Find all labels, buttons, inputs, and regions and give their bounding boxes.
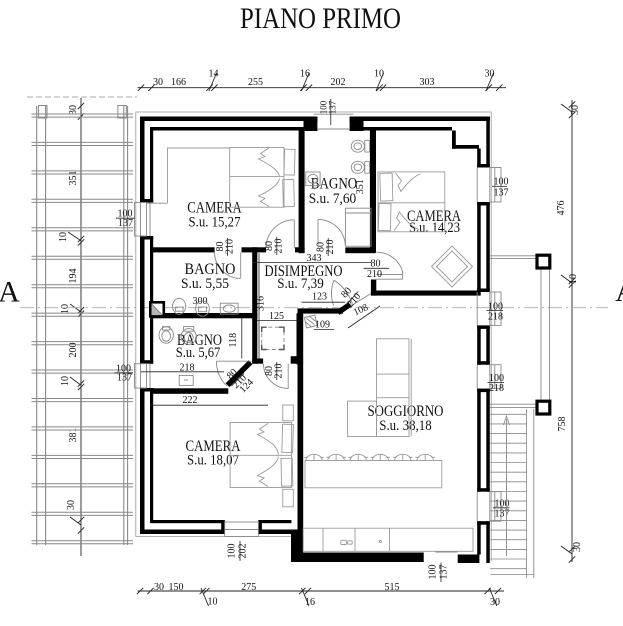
svg-text:351: 351 xyxy=(68,171,79,186)
svg-text:137: 137 xyxy=(494,188,509,199)
svg-text:PIANO PRIMO: PIANO PRIMO xyxy=(240,2,401,35)
svg-text:100: 100 xyxy=(227,544,238,559)
svg-text:202: 202 xyxy=(238,544,249,559)
svg-text:30: 30 xyxy=(154,582,164,593)
svg-text:275: 275 xyxy=(241,582,256,593)
svg-text:758: 758 xyxy=(557,417,568,432)
svg-text:222: 222 xyxy=(183,395,198,406)
svg-text:137: 137 xyxy=(117,373,132,384)
svg-text:S.u. 38,18: S.u. 38,18 xyxy=(379,418,432,434)
svg-text:202: 202 xyxy=(331,77,346,88)
svg-text:30: 30 xyxy=(153,77,163,88)
svg-text:210: 210 xyxy=(225,239,236,254)
svg-text:S.u. 5,55: S.u. 5,55 xyxy=(181,276,229,292)
svg-text:515: 515 xyxy=(385,582,400,593)
svg-text:210: 210 xyxy=(274,364,285,379)
svg-text:316: 316 xyxy=(256,296,267,311)
svg-text:S.u. 14,23: S.u. 14,23 xyxy=(409,220,460,236)
svg-text:30: 30 xyxy=(485,69,495,80)
svg-text:255: 255 xyxy=(248,77,263,88)
svg-text:137: 137 xyxy=(328,100,338,114)
svg-text:A: A xyxy=(0,276,20,309)
svg-text:210: 210 xyxy=(325,240,336,255)
svg-text:10: 10 xyxy=(60,376,71,386)
svg-text:351: 351 xyxy=(355,179,366,194)
svg-text:137: 137 xyxy=(439,565,450,580)
svg-text:100: 100 xyxy=(494,177,509,188)
svg-text:218: 218 xyxy=(489,383,504,394)
svg-text:30: 30 xyxy=(570,105,581,115)
svg-text:150: 150 xyxy=(169,582,184,593)
svg-text:14: 14 xyxy=(209,69,219,80)
svg-text:137: 137 xyxy=(495,509,510,520)
svg-text:10: 10 xyxy=(568,274,579,284)
svg-text:343: 343 xyxy=(307,253,322,264)
svg-text:S.u. 7,39: S.u. 7,39 xyxy=(277,276,324,292)
svg-text:30: 30 xyxy=(490,597,500,608)
svg-text:S.u. 15,27: S.u. 15,27 xyxy=(189,215,241,231)
svg-text:100: 100 xyxy=(428,565,439,580)
svg-text:194: 194 xyxy=(68,269,79,284)
svg-text:10: 10 xyxy=(374,69,384,80)
svg-text:16: 16 xyxy=(300,69,310,80)
svg-text:210: 210 xyxy=(274,239,285,254)
svg-text:303: 303 xyxy=(420,77,435,88)
svg-text:210: 210 xyxy=(367,269,382,280)
svg-text:10: 10 xyxy=(58,232,69,242)
svg-text:10: 10 xyxy=(60,304,71,314)
svg-text:10: 10 xyxy=(208,597,218,608)
svg-text:30: 30 xyxy=(572,542,583,552)
svg-text:118: 118 xyxy=(228,333,239,348)
svg-text:A: A xyxy=(615,275,623,308)
svg-text:476: 476 xyxy=(556,201,567,216)
svg-text:109: 109 xyxy=(315,320,330,331)
svg-text:137: 137 xyxy=(118,218,133,229)
svg-text:218: 218 xyxy=(488,312,503,323)
svg-text:S.u. 7,60: S.u. 7,60 xyxy=(309,191,357,207)
svg-text:166: 166 xyxy=(171,77,186,88)
svg-text:123: 123 xyxy=(312,292,327,303)
svg-text:16: 16 xyxy=(305,597,315,608)
svg-text:S.u. 5,67: S.u. 5,67 xyxy=(176,345,221,361)
svg-text:30: 30 xyxy=(66,500,77,510)
